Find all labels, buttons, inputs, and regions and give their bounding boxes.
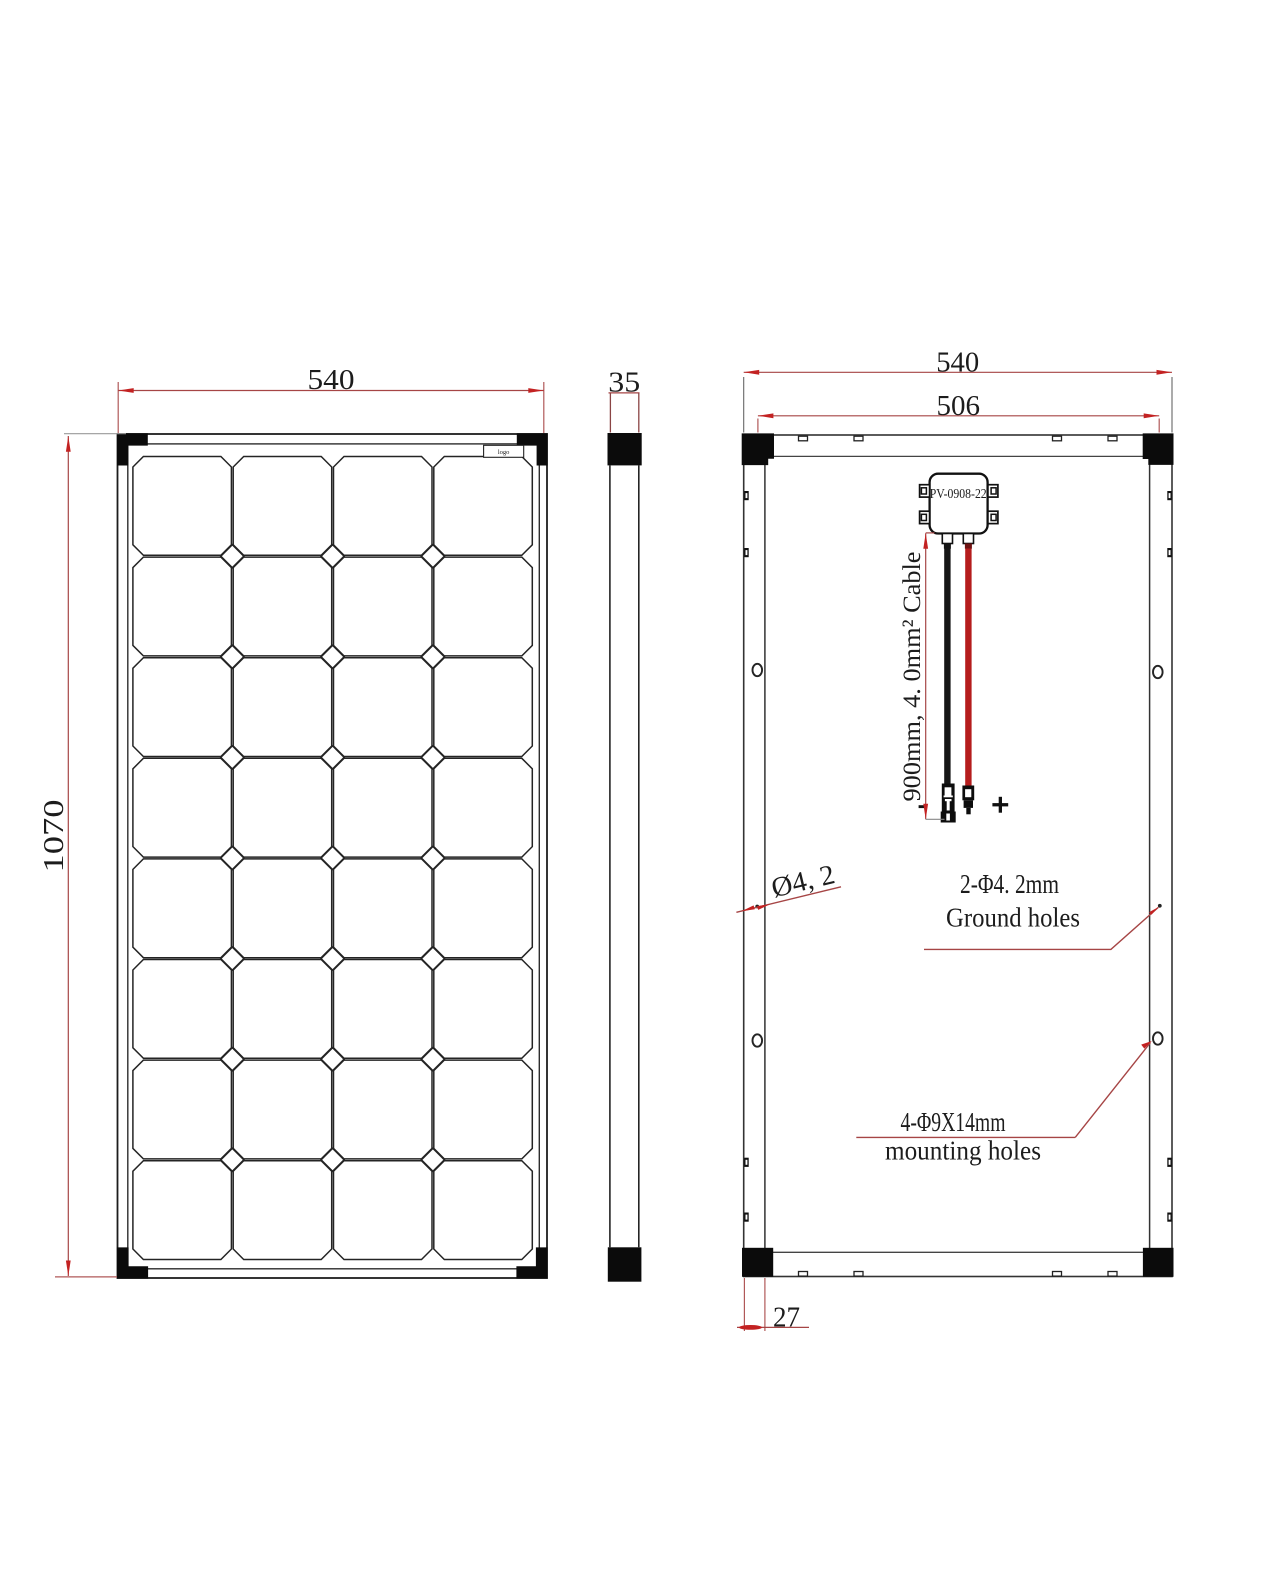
svg-text:540: 540 — [936, 346, 979, 378]
svg-text:1070: 1070 — [38, 800, 70, 873]
svg-text:PV-0908-22: PV-0908-22 — [930, 486, 987, 501]
svg-text:27: 27 — [773, 1302, 800, 1334]
svg-text:35: 35 — [608, 367, 640, 399]
svg-text:506: 506 — [936, 390, 980, 422]
svg-text:4-Φ9X14mm: 4-Φ9X14mm — [901, 1107, 1006, 1137]
svg-text:540: 540 — [308, 364, 355, 396]
svg-text:Ground holes: Ground holes — [946, 903, 1080, 933]
svg-text:logo: logo — [498, 449, 510, 456]
svg-text:mounting holes: mounting holes — [885, 1136, 1041, 1166]
svg-text:2-Φ4. 2mm: 2-Φ4. 2mm — [960, 869, 1059, 899]
svg-text:900mm, 4. 0mm² Cable: 900mm, 4. 0mm² Cable — [897, 552, 926, 802]
